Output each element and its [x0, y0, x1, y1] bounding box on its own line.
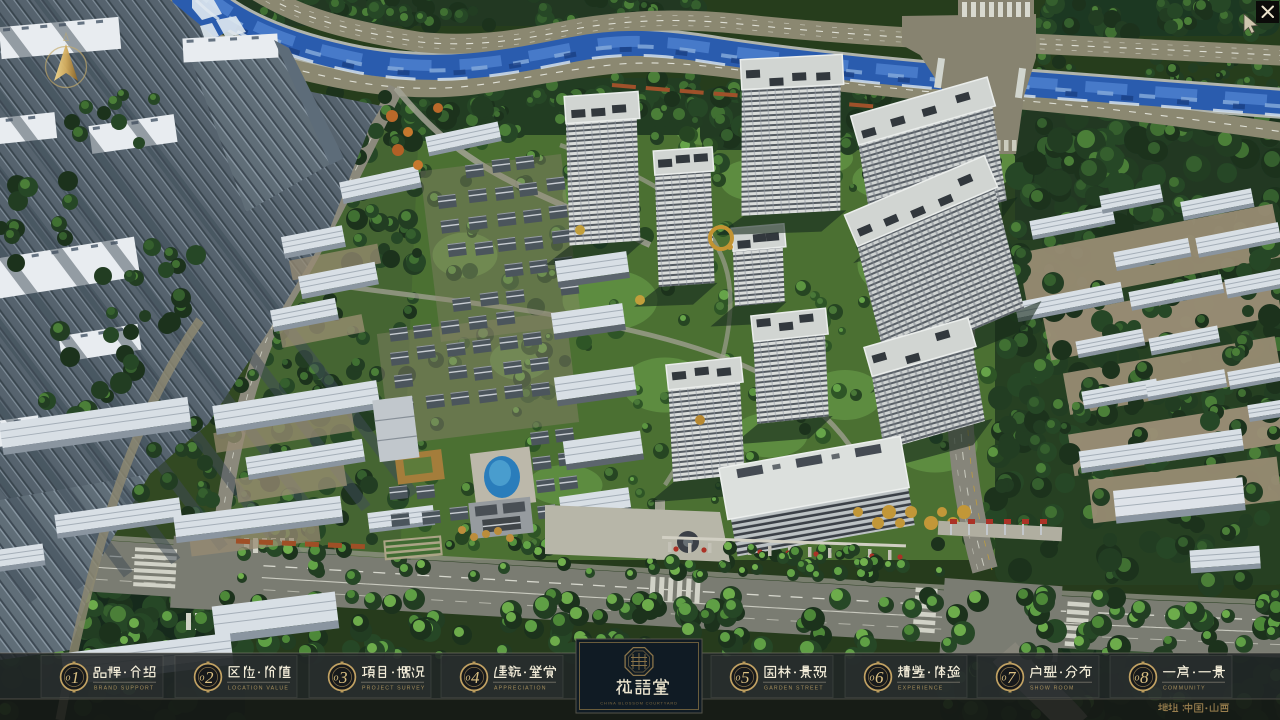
svg-text:COMMUNITY: COMMUNITY — [1163, 686, 1206, 692]
svg-text:BRAND SUPPORT: BRAND SUPPORT — [94, 686, 154, 692]
svg-text:APPRECIATION: APPRECIATION — [494, 686, 547, 692]
svg-text:3: 3 — [338, 668, 348, 687]
svg-text:GARDEN STREET: GARDEN STREET — [764, 686, 824, 692]
svg-text:2: 2 — [205, 668, 214, 687]
svg-text:o: o — [466, 673, 471, 684]
svg-text:o: o — [200, 673, 205, 684]
svg-text:o: o — [1002, 673, 1007, 684]
svg-text:o: o — [870, 673, 875, 684]
svg-text:CHINA BLOSSOM COURTYARD: CHINA BLOSSOM COURTYARD — [600, 701, 678, 706]
svg-text:5: 5 — [741, 668, 750, 687]
svg-text:o: o — [66, 673, 71, 684]
svg-text:EXPERIENCE: EXPERIENCE — [898, 686, 943, 692]
svg-text:8: 8 — [1140, 668, 1149, 687]
svg-text:o: o — [1135, 673, 1140, 684]
svg-text:6: 6 — [875, 668, 884, 687]
svg-text:o: o — [736, 673, 741, 684]
svg-text:SHOW ROOM: SHOW ROOM — [1030, 686, 1075, 692]
svg-text:PROJECT SURVEY: PROJECT SURVEY — [362, 686, 426, 692]
svg-text:4: 4 — [471, 668, 480, 687]
svg-text:1: 1 — [71, 668, 80, 687]
svg-text:o: o — [334, 673, 339, 684]
svg-text:LOCATION VALUE: LOCATION VALUE — [228, 686, 289, 692]
